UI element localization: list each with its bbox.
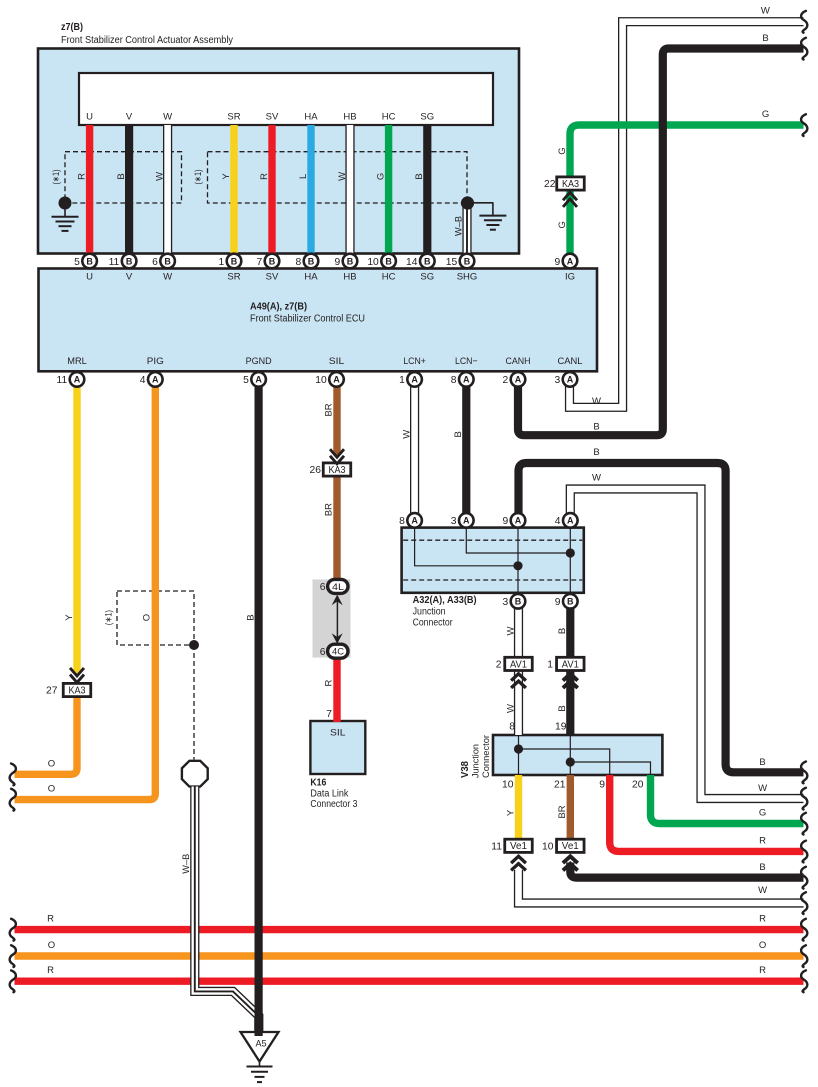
svg-text:B: B bbox=[126, 256, 133, 266]
svg-text:B: B bbox=[567, 597, 574, 607]
svg-text:R: R bbox=[47, 914, 54, 925]
svg-text:B: B bbox=[762, 33, 768, 44]
svg-text:W–B: W–B bbox=[454, 216, 465, 236]
svg-text:O: O bbox=[48, 784, 55, 795]
svg-text:AV1: AV1 bbox=[510, 659, 527, 670]
svg-text:B: B bbox=[347, 256, 354, 266]
svg-text:IG: IG bbox=[565, 272, 575, 283]
svg-text:A: A bbox=[567, 256, 574, 266]
svg-text:10: 10 bbox=[502, 780, 514, 791]
svg-text:O: O bbox=[142, 614, 153, 621]
svg-text:B: B bbox=[593, 422, 599, 433]
svg-text:27: 27 bbox=[46, 686, 58, 697]
svg-text:3: 3 bbox=[554, 375, 560, 386]
svg-text:1: 1 bbox=[399, 375, 405, 386]
svg-text:W: W bbox=[163, 272, 172, 283]
svg-text:B: B bbox=[515, 597, 522, 607]
svg-text:KA3: KA3 bbox=[69, 685, 86, 696]
svg-text:Y: Y bbox=[221, 173, 232, 180]
svg-text:PGND: PGND bbox=[246, 356, 272, 367]
svg-text:HB: HB bbox=[343, 272, 356, 283]
svg-text:B: B bbox=[308, 256, 315, 266]
svg-text:6: 6 bbox=[320, 582, 326, 593]
svg-text:BR: BR bbox=[324, 403, 335, 416]
svg-text:SG: SG bbox=[420, 272, 434, 283]
svg-text:26: 26 bbox=[310, 465, 322, 476]
svg-text:7: 7 bbox=[256, 257, 262, 268]
svg-text:LCN−: LCN− bbox=[455, 356, 478, 367]
svg-text:4: 4 bbox=[555, 516, 561, 527]
svg-text:R: R bbox=[759, 965, 766, 976]
svg-text:V38: V38 bbox=[460, 761, 471, 778]
svg-text:B: B bbox=[245, 614, 256, 620]
svg-text:R: R bbox=[76, 173, 87, 180]
svg-text:A49(A), z7(B): A49(A), z7(B) bbox=[250, 302, 307, 313]
svg-text:V: V bbox=[126, 112, 133, 123]
svg-text:6: 6 bbox=[320, 647, 326, 658]
svg-text:8: 8 bbox=[451, 375, 457, 386]
svg-text:A: A bbox=[333, 375, 340, 385]
svg-text:R: R bbox=[759, 836, 766, 847]
svg-text:L: L bbox=[298, 174, 309, 179]
svg-text:A: A bbox=[152, 375, 159, 385]
svg-text:15: 15 bbox=[446, 257, 458, 268]
svg-text:9: 9 bbox=[599, 780, 605, 791]
svg-text:LCN+: LCN+ bbox=[403, 356, 426, 367]
svg-text:4: 4 bbox=[140, 375, 146, 386]
svg-text:AV1: AV1 bbox=[562, 659, 579, 670]
svg-text:10: 10 bbox=[315, 375, 327, 386]
svg-text:HB: HB bbox=[343, 112, 356, 123]
svg-text:9: 9 bbox=[554, 257, 560, 268]
svg-text:Front Stabilizer Control Actua: Front Stabilizer Control Actuator Assemb… bbox=[61, 35, 233, 46]
svg-text:B: B bbox=[269, 256, 276, 266]
svg-text:A: A bbox=[463, 375, 470, 385]
svg-text:HA: HA bbox=[304, 112, 318, 123]
svg-text:G: G bbox=[375, 173, 386, 180]
svg-text:B: B bbox=[557, 628, 568, 634]
svg-text:SR: SR bbox=[227, 272, 240, 283]
svg-text:4L: 4L bbox=[332, 582, 344, 593]
svg-text:B: B bbox=[414, 173, 425, 179]
svg-text:Connector 3: Connector 3 bbox=[310, 799, 357, 810]
svg-text:8: 8 bbox=[399, 516, 405, 527]
svg-text:A: A bbox=[411, 516, 418, 526]
svg-text:A5: A5 bbox=[255, 1039, 266, 1049]
svg-text:B: B bbox=[116, 173, 127, 179]
svg-text:SG: SG bbox=[420, 112, 434, 123]
svg-text:K16: K16 bbox=[310, 778, 326, 789]
svg-text:9: 9 bbox=[334, 257, 340, 268]
svg-text:KA3: KA3 bbox=[562, 179, 579, 190]
svg-text:2: 2 bbox=[496, 660, 502, 671]
svg-text:O: O bbox=[48, 940, 55, 951]
svg-text:PIG: PIG bbox=[147, 356, 164, 367]
svg-text:W: W bbox=[592, 473, 601, 484]
svg-text:G: G bbox=[557, 221, 568, 228]
svg-text:G: G bbox=[759, 808, 766, 819]
svg-text:CANL: CANL bbox=[558, 356, 583, 367]
svg-text:(∗1): (∗1) bbox=[103, 610, 114, 625]
svg-text:A: A bbox=[515, 375, 522, 385]
svg-text:B: B bbox=[557, 705, 568, 711]
svg-text:W: W bbox=[758, 885, 767, 896]
svg-text:7: 7 bbox=[326, 709, 332, 720]
svg-text:W: W bbox=[337, 172, 348, 181]
svg-text:W: W bbox=[505, 626, 516, 635]
svg-text:Connector: Connector bbox=[413, 618, 454, 629]
svg-text:A: A bbox=[411, 375, 418, 385]
svg-text:2: 2 bbox=[502, 375, 508, 386]
svg-text:A: A bbox=[567, 375, 574, 385]
svg-text:Junction: Junction bbox=[413, 607, 446, 618]
svg-text:4C: 4C bbox=[332, 647, 344, 658]
svg-text:V: V bbox=[126, 272, 133, 283]
svg-text:3: 3 bbox=[451, 516, 457, 527]
svg-text:14: 14 bbox=[406, 257, 418, 268]
svg-text:Front Stabilizer Control ECU: Front Stabilizer Control ECU bbox=[250, 314, 365, 325]
svg-text:A: A bbox=[463, 516, 470, 526]
svg-text:SV: SV bbox=[266, 272, 279, 283]
svg-text:11: 11 bbox=[109, 257, 120, 268]
svg-text:MRL: MRL bbox=[67, 356, 87, 367]
svg-text:A: A bbox=[515, 516, 522, 526]
svg-text:5: 5 bbox=[74, 257, 80, 268]
svg-text:R: R bbox=[759, 914, 766, 925]
svg-text:8: 8 bbox=[295, 257, 301, 268]
svg-text:(∗1): (∗1) bbox=[193, 170, 204, 185]
svg-text:Y: Y bbox=[505, 809, 516, 816]
svg-text:U: U bbox=[86, 112, 93, 123]
svg-text:21: 21 bbox=[554, 780, 566, 791]
svg-text:1: 1 bbox=[218, 257, 224, 268]
svg-text:A: A bbox=[74, 375, 81, 385]
svg-text:O: O bbox=[48, 758, 55, 769]
svg-text:19: 19 bbox=[555, 722, 567, 733]
svg-text:W–B: W–B bbox=[181, 854, 192, 874]
svg-text:z7(B): z7(B) bbox=[61, 22, 83, 33]
svg-text:O: O bbox=[759, 940, 766, 951]
svg-text:B: B bbox=[424, 256, 431, 266]
svg-text:A32(A), A33(B): A32(A), A33(B) bbox=[413, 595, 477, 606]
svg-text:B: B bbox=[453, 431, 464, 437]
svg-text:W: W bbox=[761, 6, 770, 17]
svg-text:HC: HC bbox=[382, 112, 396, 123]
svg-text:3: 3 bbox=[502, 597, 508, 608]
svg-text:9: 9 bbox=[502, 516, 508, 527]
svg-text:Data Link: Data Link bbox=[310, 789, 349, 800]
svg-text:R: R bbox=[259, 173, 270, 180]
svg-text:HC: HC bbox=[382, 272, 396, 283]
svg-text:11: 11 bbox=[491, 841, 502, 852]
svg-text:10: 10 bbox=[367, 257, 379, 268]
svg-text:9: 9 bbox=[555, 597, 561, 608]
svg-text:B: B bbox=[759, 757, 765, 768]
svg-text:Y: Y bbox=[64, 614, 75, 621]
svg-text:6: 6 bbox=[152, 257, 158, 268]
svg-text:R: R bbox=[47, 965, 54, 976]
svg-text:U: U bbox=[86, 272, 93, 283]
svg-text:HA: HA bbox=[304, 272, 318, 283]
svg-text:BR: BR bbox=[324, 503, 335, 516]
svg-text:R: R bbox=[323, 679, 334, 686]
svg-text:Connector: Connector bbox=[481, 735, 492, 778]
svg-text:W: W bbox=[758, 783, 767, 794]
svg-text:SIL: SIL bbox=[329, 356, 345, 367]
svg-text:B: B bbox=[164, 256, 171, 266]
svg-text:Ve1: Ve1 bbox=[562, 841, 579, 852]
svg-text:W: W bbox=[505, 704, 516, 713]
svg-text:KA3: KA3 bbox=[329, 465, 346, 476]
svg-text:SHG: SHG bbox=[457, 272, 478, 283]
svg-text:Ve1: Ve1 bbox=[510, 841, 527, 852]
svg-text:Junction: Junction bbox=[471, 744, 482, 778]
svg-text:SV: SV bbox=[266, 112, 279, 123]
svg-text:W: W bbox=[401, 430, 412, 439]
svg-text:22: 22 bbox=[544, 179, 556, 190]
svg-text:W: W bbox=[163, 112, 172, 123]
svg-text:SR: SR bbox=[227, 112, 240, 123]
svg-text:B: B bbox=[759, 862, 765, 873]
svg-text:5: 5 bbox=[243, 375, 249, 386]
svg-text:W: W bbox=[154, 172, 165, 181]
svg-text:G: G bbox=[557, 147, 568, 154]
svg-text:A: A bbox=[567, 516, 574, 526]
svg-text:G: G bbox=[762, 109, 769, 120]
svg-text:W: W bbox=[592, 396, 601, 407]
svg-text:11: 11 bbox=[56, 375, 67, 386]
svg-text:10: 10 bbox=[542, 841, 554, 852]
svg-text:B: B bbox=[385, 256, 392, 266]
svg-text:B: B bbox=[593, 447, 599, 458]
svg-text:SIL: SIL bbox=[330, 728, 346, 739]
svg-text:8: 8 bbox=[509, 722, 515, 733]
svg-text:1: 1 bbox=[547, 660, 553, 671]
svg-text:B: B bbox=[86, 256, 93, 266]
svg-text:B: B bbox=[231, 256, 238, 266]
svg-text:A: A bbox=[255, 375, 262, 385]
svg-text:20: 20 bbox=[632, 780, 644, 791]
svg-text:CANH: CANH bbox=[506, 356, 531, 367]
svg-text:BR: BR bbox=[557, 805, 568, 818]
svg-text:B: B bbox=[464, 256, 471, 266]
svg-text:(∗1): (∗1) bbox=[51, 170, 62, 185]
